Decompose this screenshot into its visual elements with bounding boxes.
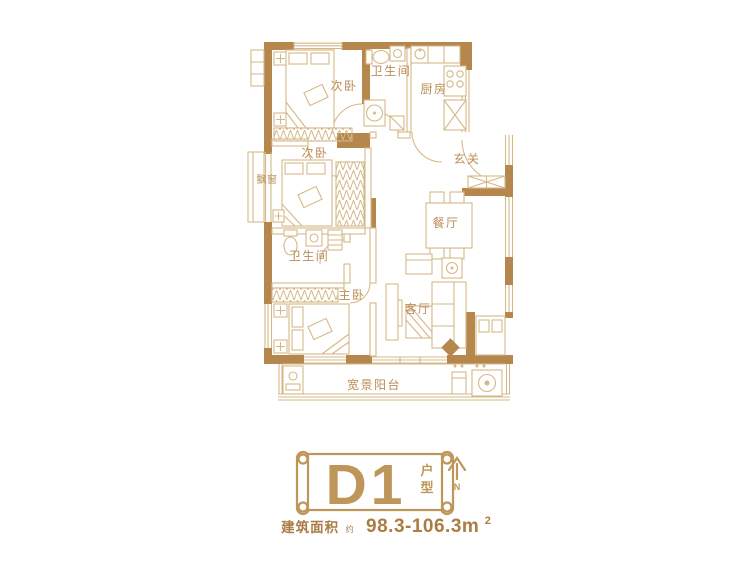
- area-value: 98.3-106.3m: [366, 516, 479, 537]
- wardrobe-bedroom-mid: [336, 162, 364, 226]
- sink-bathroom-top: [390, 46, 405, 61]
- unit-type-char-1: 户: [420, 463, 433, 478]
- balcony-cabinet: [283, 366, 303, 394]
- room-label-kitchen: 厨房: [420, 81, 447, 96]
- north-label: N: [454, 482, 461, 492]
- area-superscript: 2: [485, 515, 491, 527]
- room-label-bedroom-top: 次卧: [330, 79, 357, 93]
- tv-cabinet: [386, 284, 402, 340]
- wardrobe-bedroom-top: [274, 128, 352, 141]
- washer-bathroom-top: [364, 100, 404, 130]
- entry-door-hatch: [468, 176, 505, 188]
- area-approx: 约: [346, 524, 354, 534]
- room-label-balcony: 宽景阳台: [347, 377, 401, 392]
- room-label-living: 客厅: [404, 301, 431, 316]
- unit-name: D1: [326, 453, 407, 517]
- kitchen-counter: [411, 46, 460, 63]
- ac-platform: [251, 50, 264, 86]
- sofa: [432, 282, 466, 348]
- toilet-bathroom-top: [366, 50, 389, 64]
- room-label-dining: 餐厅: [432, 215, 459, 230]
- room-label-bedroom-mid: 次卧: [301, 146, 328, 160]
- floorplan-svg: 次卧 卫生间 厨房 次卧 飘窗 玄关 餐厅 卫生间 主卧 客厅 宽景阳台 D1 …: [0, 0, 750, 585]
- area-line: 建筑面积 约 98.3-106.3m 2: [280, 515, 491, 537]
- wardrobe-master: [272, 288, 338, 302]
- bed-bedroom-mid: [273, 160, 332, 226]
- room-label-bay-window: 飘窗: [257, 173, 278, 186]
- floorplan-page: 次卧 卫生间 厨房 次卧 飘窗 玄关 餐厅 卫生间 主卧 客厅 宽景阳台 D1 …: [0, 0, 750, 585]
- room-label-master: 主卧: [338, 288, 365, 302]
- bed-master: [274, 304, 349, 354]
- area-label: 建筑面积: [280, 519, 339, 535]
- side-table-lamp: [442, 258, 462, 278]
- unit-banner: D1 户 型: [297, 452, 453, 517]
- room-label-entry: 玄关: [453, 151, 480, 166]
- room-label-bathroom-top: 卫生间: [371, 64, 412, 78]
- unit-type-char-2: 型: [420, 480, 433, 495]
- room-label-bathroom-mid: 卫生间: [289, 249, 330, 263]
- bed-bedroom-top: [274, 50, 334, 128]
- armchair: [406, 254, 432, 274]
